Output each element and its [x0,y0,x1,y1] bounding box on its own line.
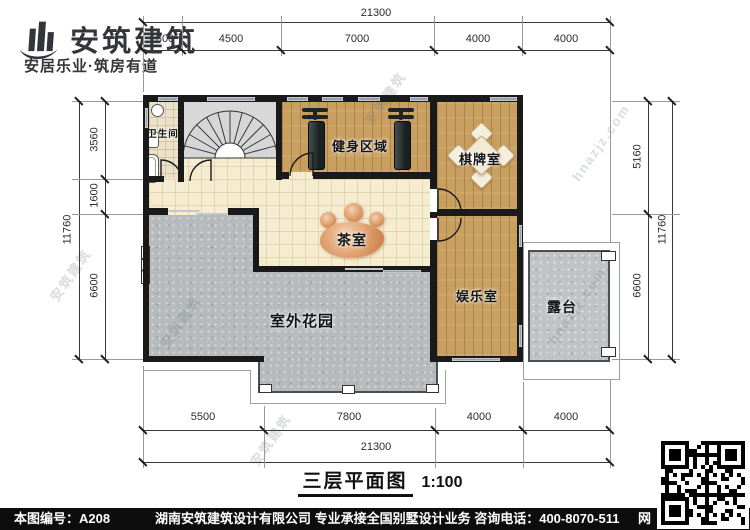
extension-line [612,359,680,360]
dim-bottom-total: 21300 [346,441,406,453]
extension-line [610,380,611,468]
window [490,97,517,101]
dimension-line [143,462,610,463]
wall-segment [228,208,259,215]
dimension-line [143,22,610,23]
room-label-terrace: 露台 [532,297,592,317]
window [383,270,421,273]
railing-post [601,347,616,357]
window [452,358,500,362]
window [287,97,308,101]
dim-top-seg-2: 7000 [327,33,387,45]
wall-segment [430,212,437,218]
dim-left-seg-2: 6600 [89,264,102,308]
wall-segment [143,95,149,362]
outline-line [143,370,251,371]
wall-segment [437,209,523,216]
extension-line [264,406,265,468]
dim-top-seg-3: 4000 [448,33,508,45]
outline-line [250,370,251,404]
drawing-title: 三层平面图 [298,471,413,497]
footer-bar: 本图编号：A208 湖南安筑建筑设计有限公司 专业承接全国别墅设计业务 咨询电话… [0,508,750,530]
railing-post [426,384,439,393]
footer-web-label: 网 [638,508,651,530]
tea-cup-icon [344,203,363,222]
window [345,268,383,271]
railing-post [601,251,616,261]
railing-post [259,384,272,393]
extension-line [143,16,144,92]
dim-right-seg-1: 6600 [632,264,645,308]
extension-line [143,366,144,468]
qr-code-image [661,441,745,525]
window [358,97,380,101]
outline-line [445,370,446,404]
drawing-scale: 1:100 [422,474,463,491]
window [322,97,343,101]
footer-company: 湖南安筑建筑设计有限公司 专业承接全国别墅设计业务 咨询电话：400-8070-… [155,508,619,530]
room-garden-floor-upper [149,215,253,272]
dim-bottom-seg-1: 7800 [319,411,379,423]
dimension-line [143,50,610,51]
drawing-sheet: 卫生间 健身区域 棋牌室 茶室 娱乐室 室外花园 露台 安筑建筑 安筑建筑 安筑… [0,0,750,530]
dim-top-seg-4: 4000 [536,33,596,45]
dimension-line [648,101,649,359]
dimension-line [105,101,106,359]
stair-landing [184,101,276,158]
wall-segment [517,95,523,216]
wall-segment [430,240,437,356]
wall-segment [430,95,437,189]
wall-segment [253,215,259,272]
wall-segment [281,172,289,179]
dim-bottom-seg-0: 5500 [173,411,233,423]
company-logo-title: 安筑建筑 [70,18,198,60]
room-label-chess: 棋牌室 [440,149,520,168]
wall-segment [276,95,282,180]
window [196,213,228,216]
dim-bottom-seg-3: 4000 [536,411,596,423]
window [145,108,149,128]
company-logo-tagline: 安居乐业·筑房有道 [24,55,158,76]
watermark: 安筑建筑 [245,409,295,469]
drawing-title-block: 三层平面图1:100 [275,466,485,493]
railing-post [342,385,355,394]
wall-segment [178,95,184,182]
window [519,325,523,347]
dimension-line [672,101,673,359]
extension-line [612,101,680,102]
outline-line [250,403,446,404]
wall-segment [143,356,264,362]
wall-segment [143,176,164,182]
room-label-bathroom: 卫生间 [146,126,180,140]
watermark: 安筑建筑 [45,244,95,304]
room-label-gym: 健身区域 [320,136,400,155]
sink-icon [151,104,164,117]
room-label-entertainment: 娱乐室 [438,286,516,305]
room-label-garden: 室外花园 [252,310,352,331]
dim-right-seg-0: 5160 [632,135,645,179]
dim-top-seg-1: 4500 [201,33,261,45]
extension-line [523,382,524,468]
window [410,97,428,101]
dim-left-seg-0: 3560 [89,118,102,162]
dim-left-seg-1: 1600 [89,174,102,218]
footer-drawing-no: 本图编号：A208 [14,508,110,530]
qr-code [657,437,749,529]
room-label-tea: 茶室 [322,230,382,250]
dimension-line [79,101,80,359]
wall-segment [313,172,430,179]
window [158,97,178,101]
window [207,97,255,101]
window [519,225,523,247]
wall-segment [143,208,168,215]
dimension-line [143,430,610,431]
watermark: hnazjz.com [569,101,633,183]
dim-bottom-seg-2: 4000 [449,411,509,423]
extension-line [612,214,680,215]
extension-line [435,408,436,468]
dim-top-total: 21300 [346,7,406,19]
